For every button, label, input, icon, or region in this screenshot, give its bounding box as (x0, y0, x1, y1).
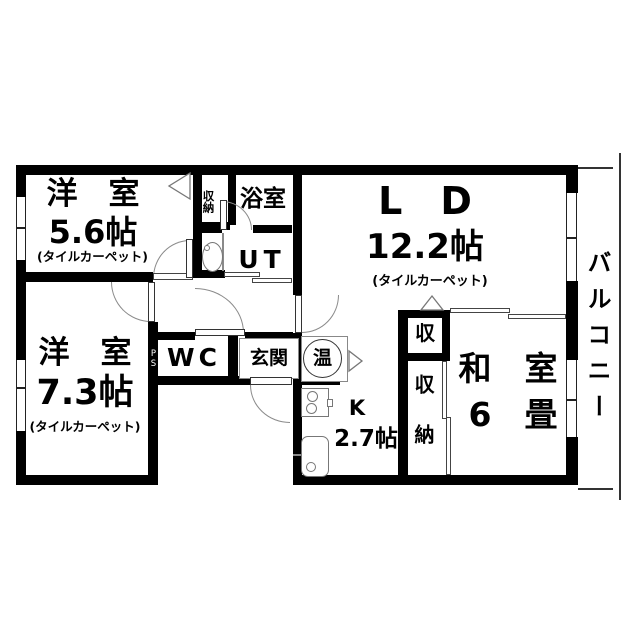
wall-bottom-left (16, 475, 158, 485)
room-label-ut: UT (230, 247, 294, 272)
room-size-western2: 7.3帖 (14, 376, 156, 411)
door-leaf-wc (195, 329, 245, 336)
room-floor-western2: (タイルカーペット) (6, 421, 164, 434)
window-tick (566, 237, 577, 239)
sliding-door-ld-japanese (508, 314, 566, 319)
room-size-kitchen: 2.7帖 (326, 428, 406, 451)
water-heater-door-triangle (349, 351, 362, 371)
room-label-kitchen: K (342, 398, 372, 419)
door-arc-western2 (111, 282, 151, 322)
water-heater-label: 温 (303, 349, 342, 368)
pipe-space-label: PS (149, 343, 158, 375)
closet-hall-label: 収納 (202, 178, 214, 224)
room-size-western1: 5.6帖 (18, 216, 168, 248)
sink-drain (306, 462, 316, 472)
wall-ld-left-upper (293, 175, 302, 295)
door-leaf-western2 (148, 282, 155, 322)
room-floor-ld: (タイルカーペット) (330, 275, 530, 288)
washbasin-faucet (204, 245, 210, 251)
door-arc-ld (302, 295, 339, 333)
room-label-japanese: 和 室 (450, 352, 566, 385)
closet-hall-door-triangle (169, 173, 190, 199)
balcony-bottom-line (578, 488, 613, 490)
room-floor-western1: (タイルカーペット) (10, 251, 175, 264)
wall-between-western-rooms (16, 272, 153, 282)
stove-knob (327, 399, 333, 407)
door-arc-entrance (250, 385, 290, 423)
wall-bath-ut (193, 225, 222, 233)
closet-japanese-label: 収納 (413, 374, 433, 474)
sliding-door-closet-japanese (446, 417, 451, 475)
balcony-right-line (619, 153, 621, 500)
door-arc-wc (195, 288, 244, 333)
balcony-top-line (578, 167, 613, 169)
sliding-door-ut (252, 278, 292, 283)
room-label-bath: 浴室 (232, 188, 294, 211)
room-size-japanese: 6 畳 (455, 398, 571, 431)
door-leaf-ld (295, 295, 302, 333)
stove-burner (306, 403, 317, 414)
closet-living-door-triangle (421, 296, 443, 310)
wall-top (16, 165, 578, 175)
wall-genkan-bottom (148, 376, 250, 385)
floorplan: 洋 室 5.6帖 (タイルカーペット) 洋 室 7.3帖 (タイルカーペット) … (0, 0, 640, 640)
closet-living-label: 収 (405, 323, 445, 343)
room-size-ld: 12.2帖 (325, 230, 525, 264)
wall-bath-ut (253, 225, 292, 233)
wall-right (566, 281, 578, 360)
wall-right (566, 165, 578, 193)
door-leaf-bath (220, 200, 227, 230)
room-label-ld: L D (325, 182, 525, 220)
room-label-wc: WC (158, 345, 230, 370)
balcony-label: バルコニー (585, 232, 609, 447)
door-leaf-entrance (250, 377, 292, 385)
sliding-door-closet-japanese (442, 361, 447, 419)
room-label-western2: 洋 室 (14, 338, 156, 369)
room-label-western1: 洋 室 (18, 179, 168, 210)
door-leaf-western1 (186, 239, 193, 278)
sliding-door-ld-japanese (450, 308, 510, 313)
kitchen-sink (301, 436, 329, 477)
room-label-genkan: 玄関 (240, 349, 298, 368)
wall-bottom-right (293, 475, 578, 485)
stove-burner (307, 391, 318, 402)
